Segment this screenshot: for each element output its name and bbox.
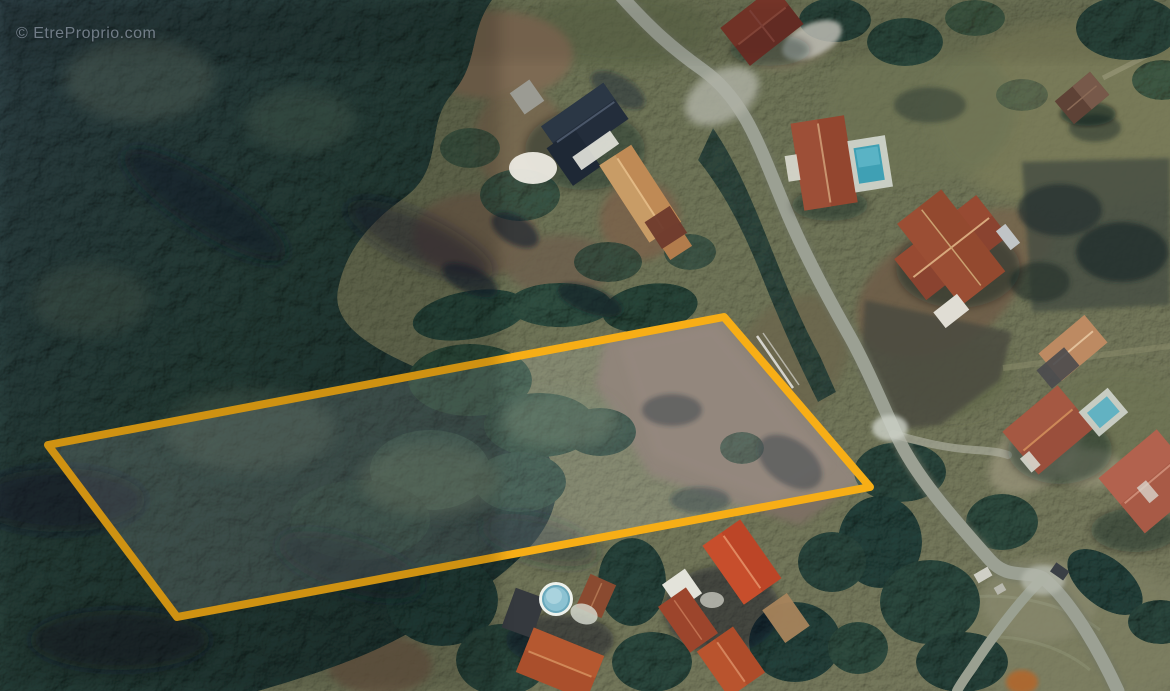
round-pool: [539, 582, 573, 616]
watermark: © EtreProprio.com: [16, 25, 156, 43]
farm-courtyard: [509, 152, 557, 184]
yard-patch-south: [700, 592, 724, 608]
satellite-map-image: © EtreProprio.com: [0, 0, 1170, 691]
junction-patch-a: [872, 415, 908, 441]
aerial-scene: [0, 0, 1170, 691]
pool-east-upper: [847, 135, 893, 192]
